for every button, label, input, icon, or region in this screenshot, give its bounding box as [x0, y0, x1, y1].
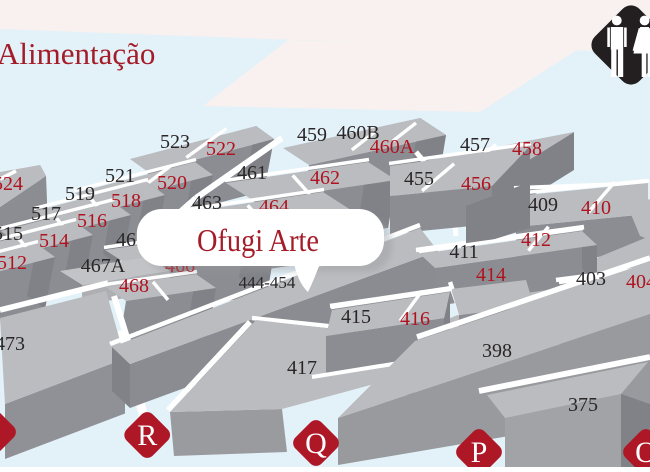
svg-text:456: 456 [461, 173, 491, 195]
svg-text:519: 519 [65, 183, 95, 205]
svg-text:375: 375 [568, 394, 598, 416]
svg-text:Q: Q [305, 427, 327, 460]
svg-text:Ofugi Arte: Ofugi Arte [197, 222, 319, 258]
svg-text:403: 403 [576, 268, 606, 290]
svg-text:P: P [471, 436, 488, 467]
svg-text:460A: 460A [370, 136, 415, 158]
svg-text:524: 524 [0, 173, 23, 195]
svg-text:457: 457 [460, 134, 490, 156]
svg-text:523: 523 [160, 131, 190, 153]
svg-text:410: 410 [581, 197, 611, 219]
svg-text:S: S [0, 416, 1, 449]
svg-text:414: 414 [476, 264, 506, 286]
svg-text:404: 404 [626, 271, 650, 293]
svg-text:O: O [635, 436, 650, 467]
svg-text:461: 461 [237, 162, 267, 184]
svg-text:517: 517 [31, 203, 61, 225]
svg-text:417: 417 [287, 357, 317, 379]
svg-text:522: 522 [206, 138, 236, 160]
svg-text:520: 520 [157, 172, 187, 194]
svg-text:Alimentação: Alimentação [0, 36, 155, 71]
svg-text:462: 462 [310, 167, 340, 189]
svg-text:416: 416 [400, 308, 430, 330]
svg-text:458: 458 [512, 138, 542, 160]
svg-text:467A: 467A [81, 255, 126, 277]
svg-text:468: 468 [119, 275, 149, 297]
svg-text:518: 518 [111, 190, 141, 212]
svg-text:409: 409 [528, 194, 558, 216]
svg-text:516: 516 [77, 210, 107, 232]
svg-text:521: 521 [105, 165, 135, 187]
svg-text:412: 412 [521, 229, 551, 251]
svg-text:473: 473 [0, 333, 25, 355]
svg-text:444-454: 444-454 [239, 273, 296, 292]
svg-text:415: 415 [341, 306, 371, 328]
svg-text:512: 512 [0, 252, 27, 274]
svg-text:411: 411 [449, 241, 478, 263]
svg-text:459: 459 [297, 124, 327, 146]
svg-text:515: 515 [0, 223, 23, 245]
svg-text:455: 455 [404, 168, 434, 190]
svg-text:398: 398 [482, 340, 512, 362]
svg-text:514: 514 [39, 230, 69, 252]
svg-text:R: R [137, 419, 157, 452]
